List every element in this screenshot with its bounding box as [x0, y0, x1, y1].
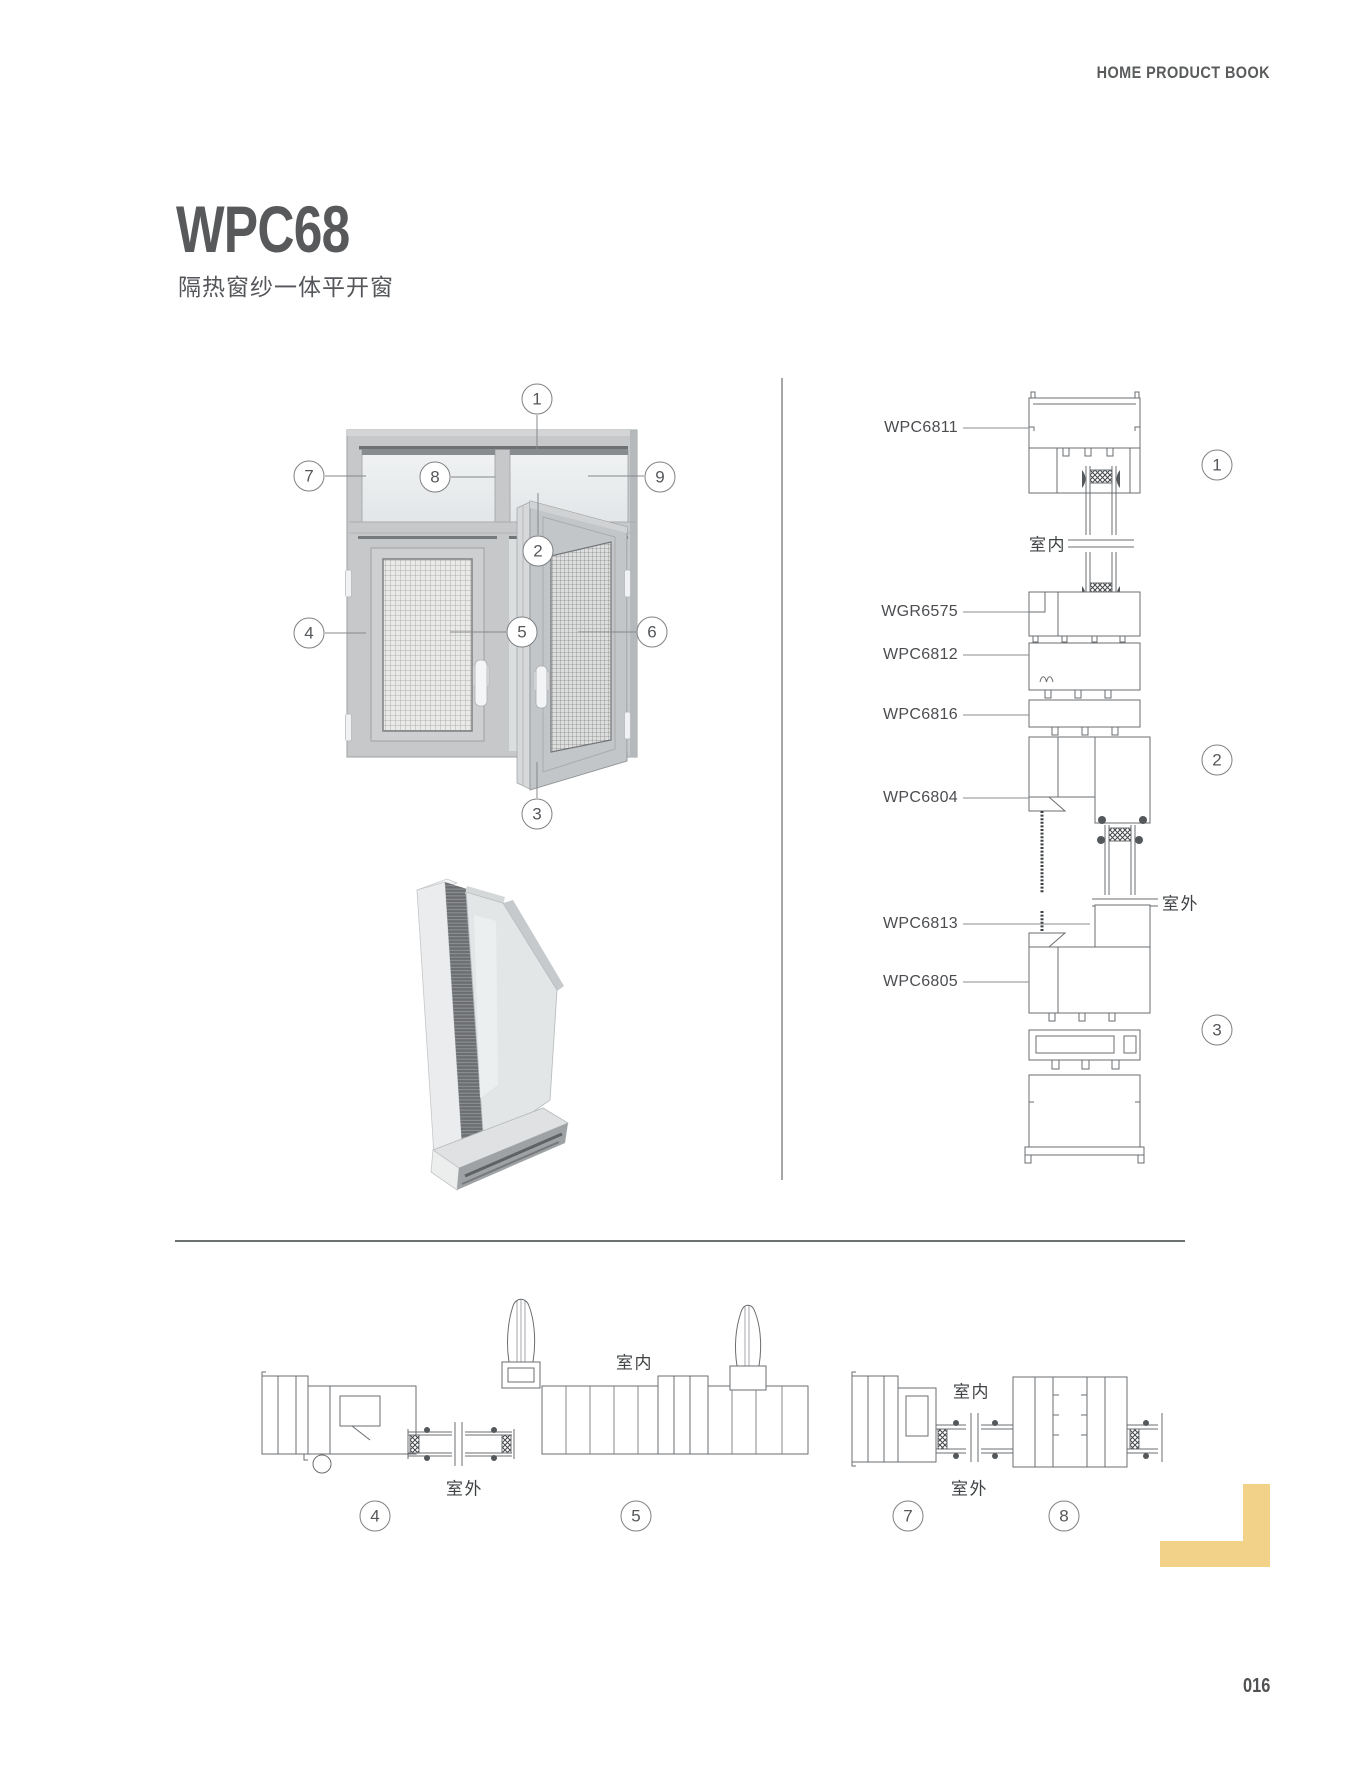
bottom-callout-4: 4 [360, 1501, 391, 1532]
part-label-wpc6816: WPC6816 [883, 706, 958, 724]
bottom-callout-8: 8 [1049, 1501, 1080, 1532]
horizontal-section-right-figure [852, 1372, 1162, 1467]
bottom-callout-7: 7 [893, 1501, 924, 1532]
callout-5: 5 [507, 617, 538, 648]
callout-2: 2 [523, 536, 554, 567]
window-elevation-figure [346, 430, 638, 790]
callout-7: 7 [294, 461, 325, 492]
part-label-wpc6805: WPC6805 [883, 973, 958, 991]
iso-profile-figure [417, 879, 568, 1190]
callout-4: 4 [294, 618, 325, 649]
indoor-label-section: 室内 [1029, 531, 1066, 556]
indoor-label-bottom-right: 室内 [953, 1378, 990, 1403]
horizontal-section-left-figure [262, 1299, 808, 1473]
header-brand: HOME PRODUCT BOOK [1097, 63, 1270, 83]
product-name: 隔热窗纱一体平开窗 [178, 268, 394, 302]
section-callout-2: 2 [1202, 745, 1233, 776]
part-label-wpc6813: WPC6813 [883, 915, 958, 933]
callout-9: 9 [645, 462, 676, 493]
callout-3: 3 [522, 799, 553, 830]
section-callout-3: 3 [1202, 1015, 1233, 1046]
part-label-wpc6804: WPC6804 [883, 789, 958, 807]
section-callout-1: 1 [1202, 450, 1233, 481]
page-number: 016 [1243, 1675, 1270, 1698]
indoor-label-bottom-left: 室内 [616, 1349, 653, 1374]
outdoor-label-bottom-right: 室外 [951, 1475, 988, 1500]
brand-corner-logo [1160, 1484, 1270, 1567]
part-label-wpc6812: WPC6812 [883, 646, 958, 664]
callout-1: 1 [522, 384, 553, 415]
bottom-callout-5: 5 [621, 1501, 652, 1532]
outdoor-label-bottom-left: 室外 [446, 1475, 483, 1500]
outdoor-label-section: 室外 [1162, 890, 1199, 915]
part-label-wgr6575: WGR6575 [881, 603, 958, 621]
catalog-page: HOME PRODUCT BOOK WPC68 隔热窗纱一体平开窗 1 2 3 … [0, 0, 1358, 1772]
part-label-wpc6811: WPC6811 [884, 419, 958, 437]
callout-6: 6 [637, 617, 668, 648]
vertical-section-figure [1025, 392, 1158, 1163]
callout-8: 8 [420, 462, 451, 493]
product-code: WPC68 [176, 196, 349, 262]
